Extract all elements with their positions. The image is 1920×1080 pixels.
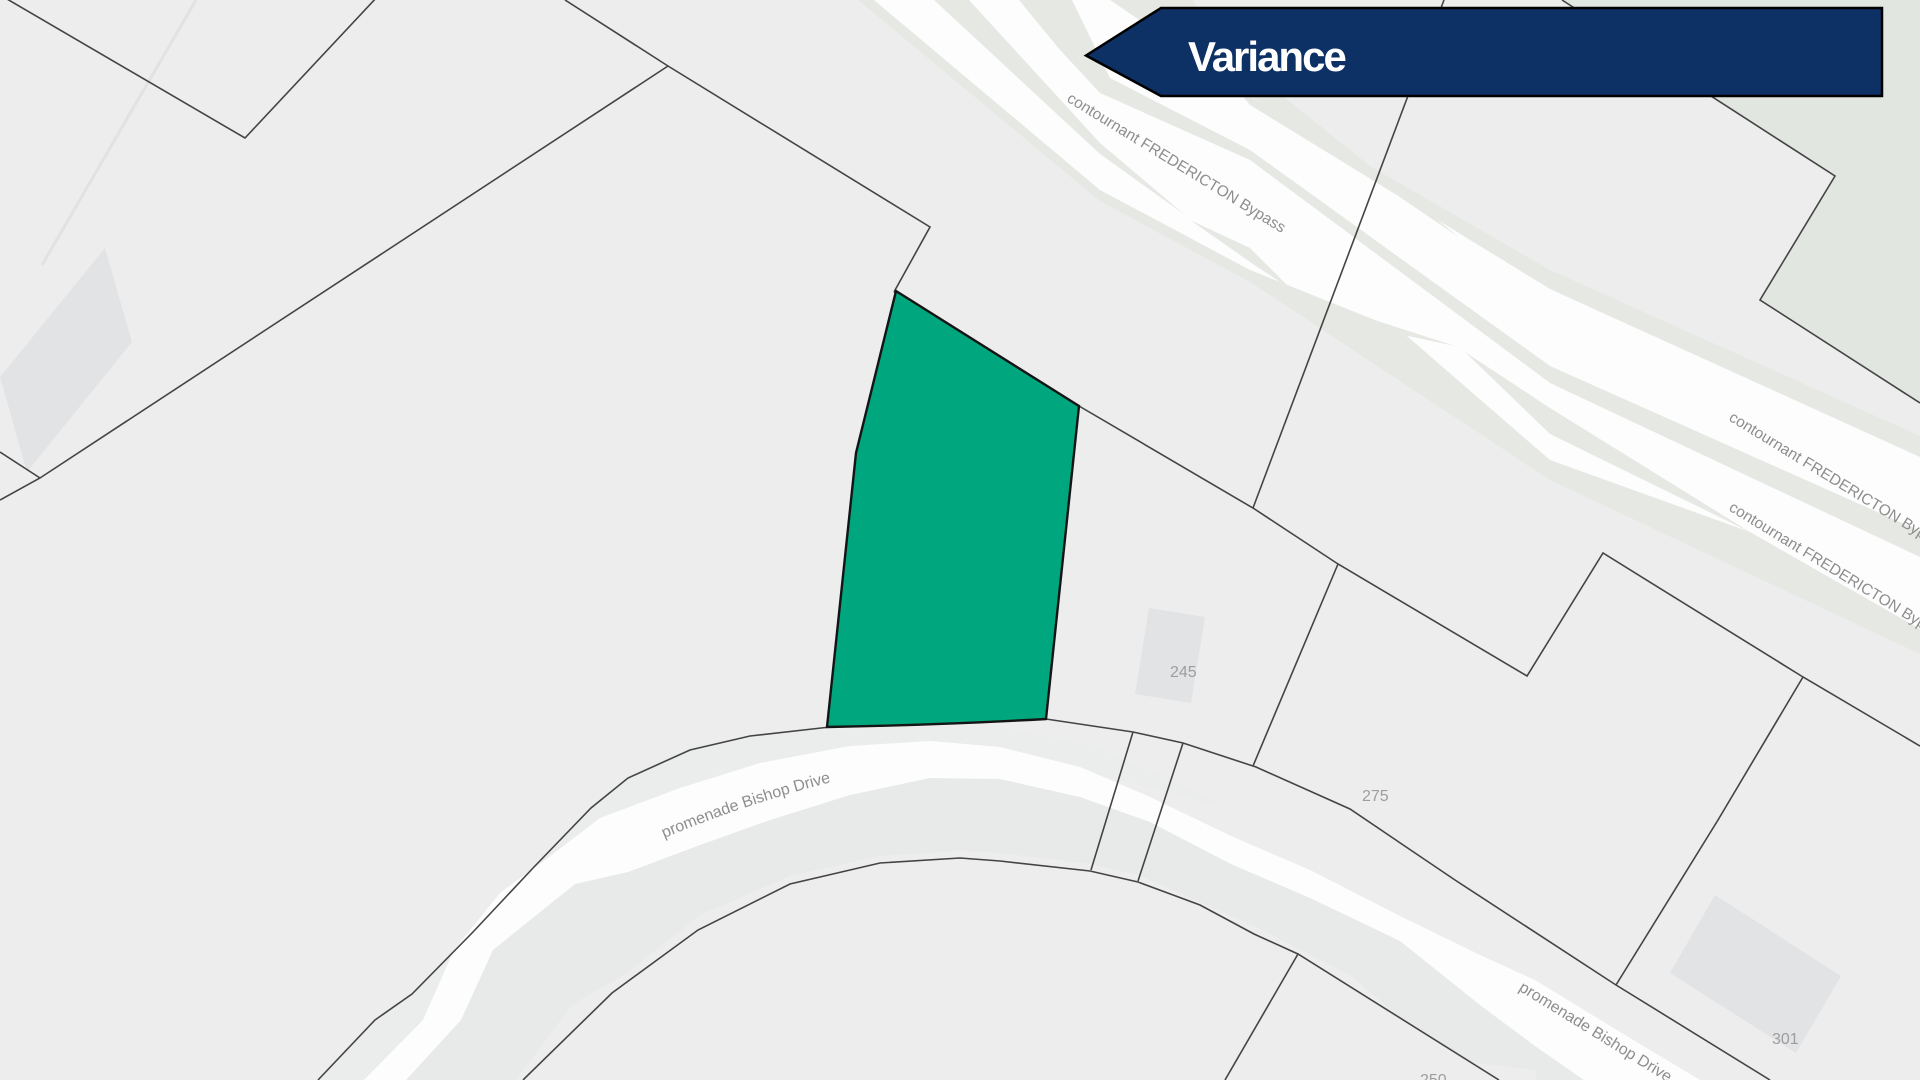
svg-text:275: 275 (1362, 788, 1389, 805)
svg-text:245: 245 (1170, 664, 1197, 681)
svg-text:250: 250 (1420, 1072, 1447, 1080)
svg-text:Variance: Variance (1188, 33, 1345, 80)
svg-text:301: 301 (1772, 1031, 1799, 1048)
